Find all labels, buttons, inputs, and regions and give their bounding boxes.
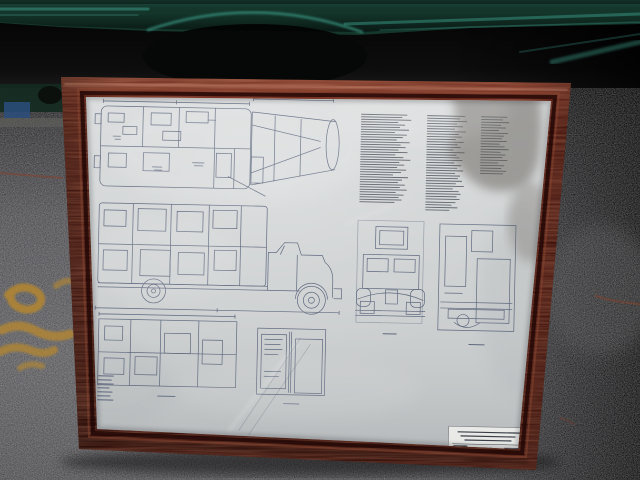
top-edge-shadow (0, 0, 640, 4)
machinery-wheel (38, 86, 62, 104)
paint-squiggle-4 (20, 364, 42, 368)
blue-object (4, 102, 30, 118)
photo-of-framed-blueprint (0, 0, 640, 480)
glare-blob-4 (180, 360, 420, 420)
glare-blob-3 (80, 220, 240, 300)
blueprint-sheet-content (50, 73, 560, 455)
